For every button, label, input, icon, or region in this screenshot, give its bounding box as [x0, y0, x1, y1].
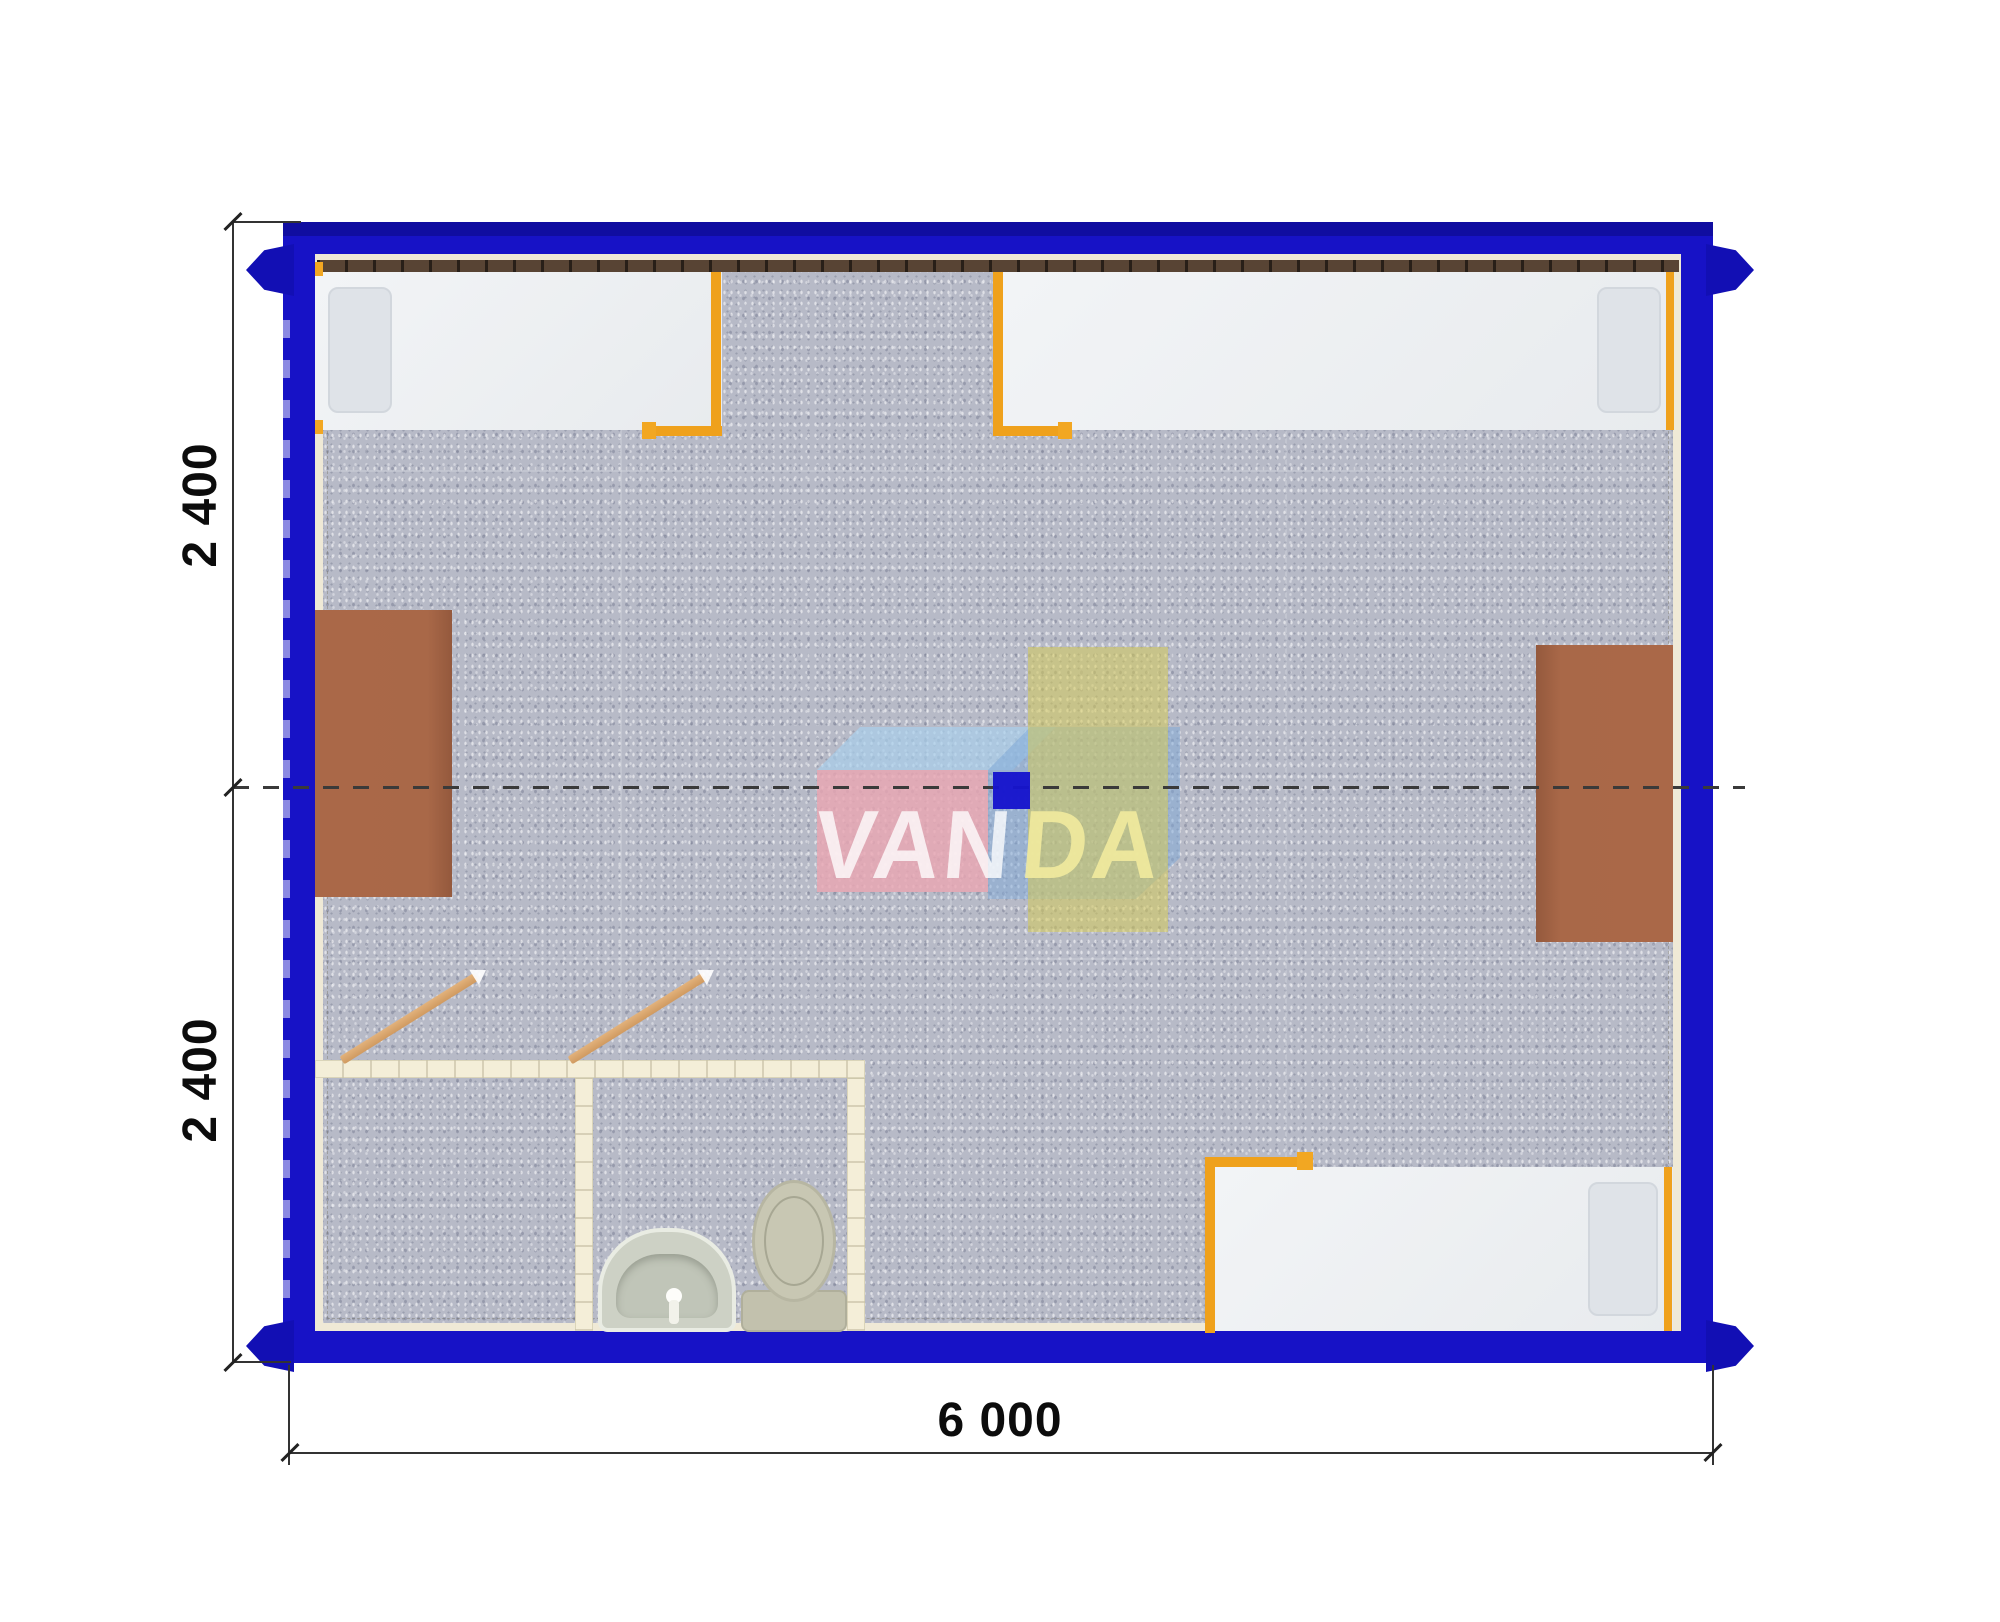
dimension-line-horizontal [290, 1452, 1714, 1454]
watermark-text-da: DA [1017, 795, 1166, 895]
corner-fitting-bottom-left [246, 1320, 294, 1372]
bed-post [315, 262, 323, 276]
desk-right [1536, 645, 1673, 942]
dimension-line-vertical [232, 222, 234, 1363]
bed-post [1058, 422, 1072, 439]
pillow [328, 287, 392, 413]
pillow [1588, 1182, 1658, 1316]
bed-frame-rail [648, 426, 722, 436]
desk-left [315, 610, 452, 897]
extension-line-bottom-left [233, 1361, 291, 1363]
extension-line-top [233, 221, 301, 223]
bed-frame-foot-bar [993, 272, 1003, 436]
toilet-seat-rim [764, 1196, 824, 1286]
bed-frame-head-bar [1666, 272, 1674, 430]
faucet-stem [669, 1300, 679, 1324]
bed-post [1297, 1152, 1313, 1170]
dimension-label-lower-height: 2 400 [150, 980, 250, 1180]
partition-wall-divider [575, 1078, 593, 1331]
module-centerline [233, 786, 1745, 789]
partition-wall-right [847, 1078, 865, 1331]
bed-frame-rail [995, 426, 1067, 436]
bed-post [642, 422, 656, 439]
bed-frame-foot-bar [711, 272, 721, 436]
partition-wall-horizontal [315, 1060, 865, 1078]
top-wall-shade [283, 222, 1713, 236]
dimension-label-width: 6 000 [880, 1392, 1120, 1448]
bed-top-right [1003, 272, 1673, 430]
corner-fitting-top-right [1706, 244, 1754, 296]
bed-post [315, 420, 323, 434]
bed-frame-head-bar [1664, 1167, 1672, 1331]
bed-frame-foot-bar [1205, 1157, 1215, 1333]
floor-plan-canvas: VANDA 2 400 2 400 6 000 [0, 0, 2000, 1622]
bed-frame-rail [1205, 1157, 1311, 1167]
window-band [317, 260, 1679, 272]
vanda-watermark: VANDA [811, 795, 1181, 895]
corner-fitting-top-left [246, 244, 294, 296]
pillow [1597, 287, 1661, 413]
watermark-text-van: VAN [811, 795, 1019, 895]
left-wall-panel-dashes [283, 320, 290, 1300]
dimension-label-upper-height: 2 400 [150, 405, 250, 605]
